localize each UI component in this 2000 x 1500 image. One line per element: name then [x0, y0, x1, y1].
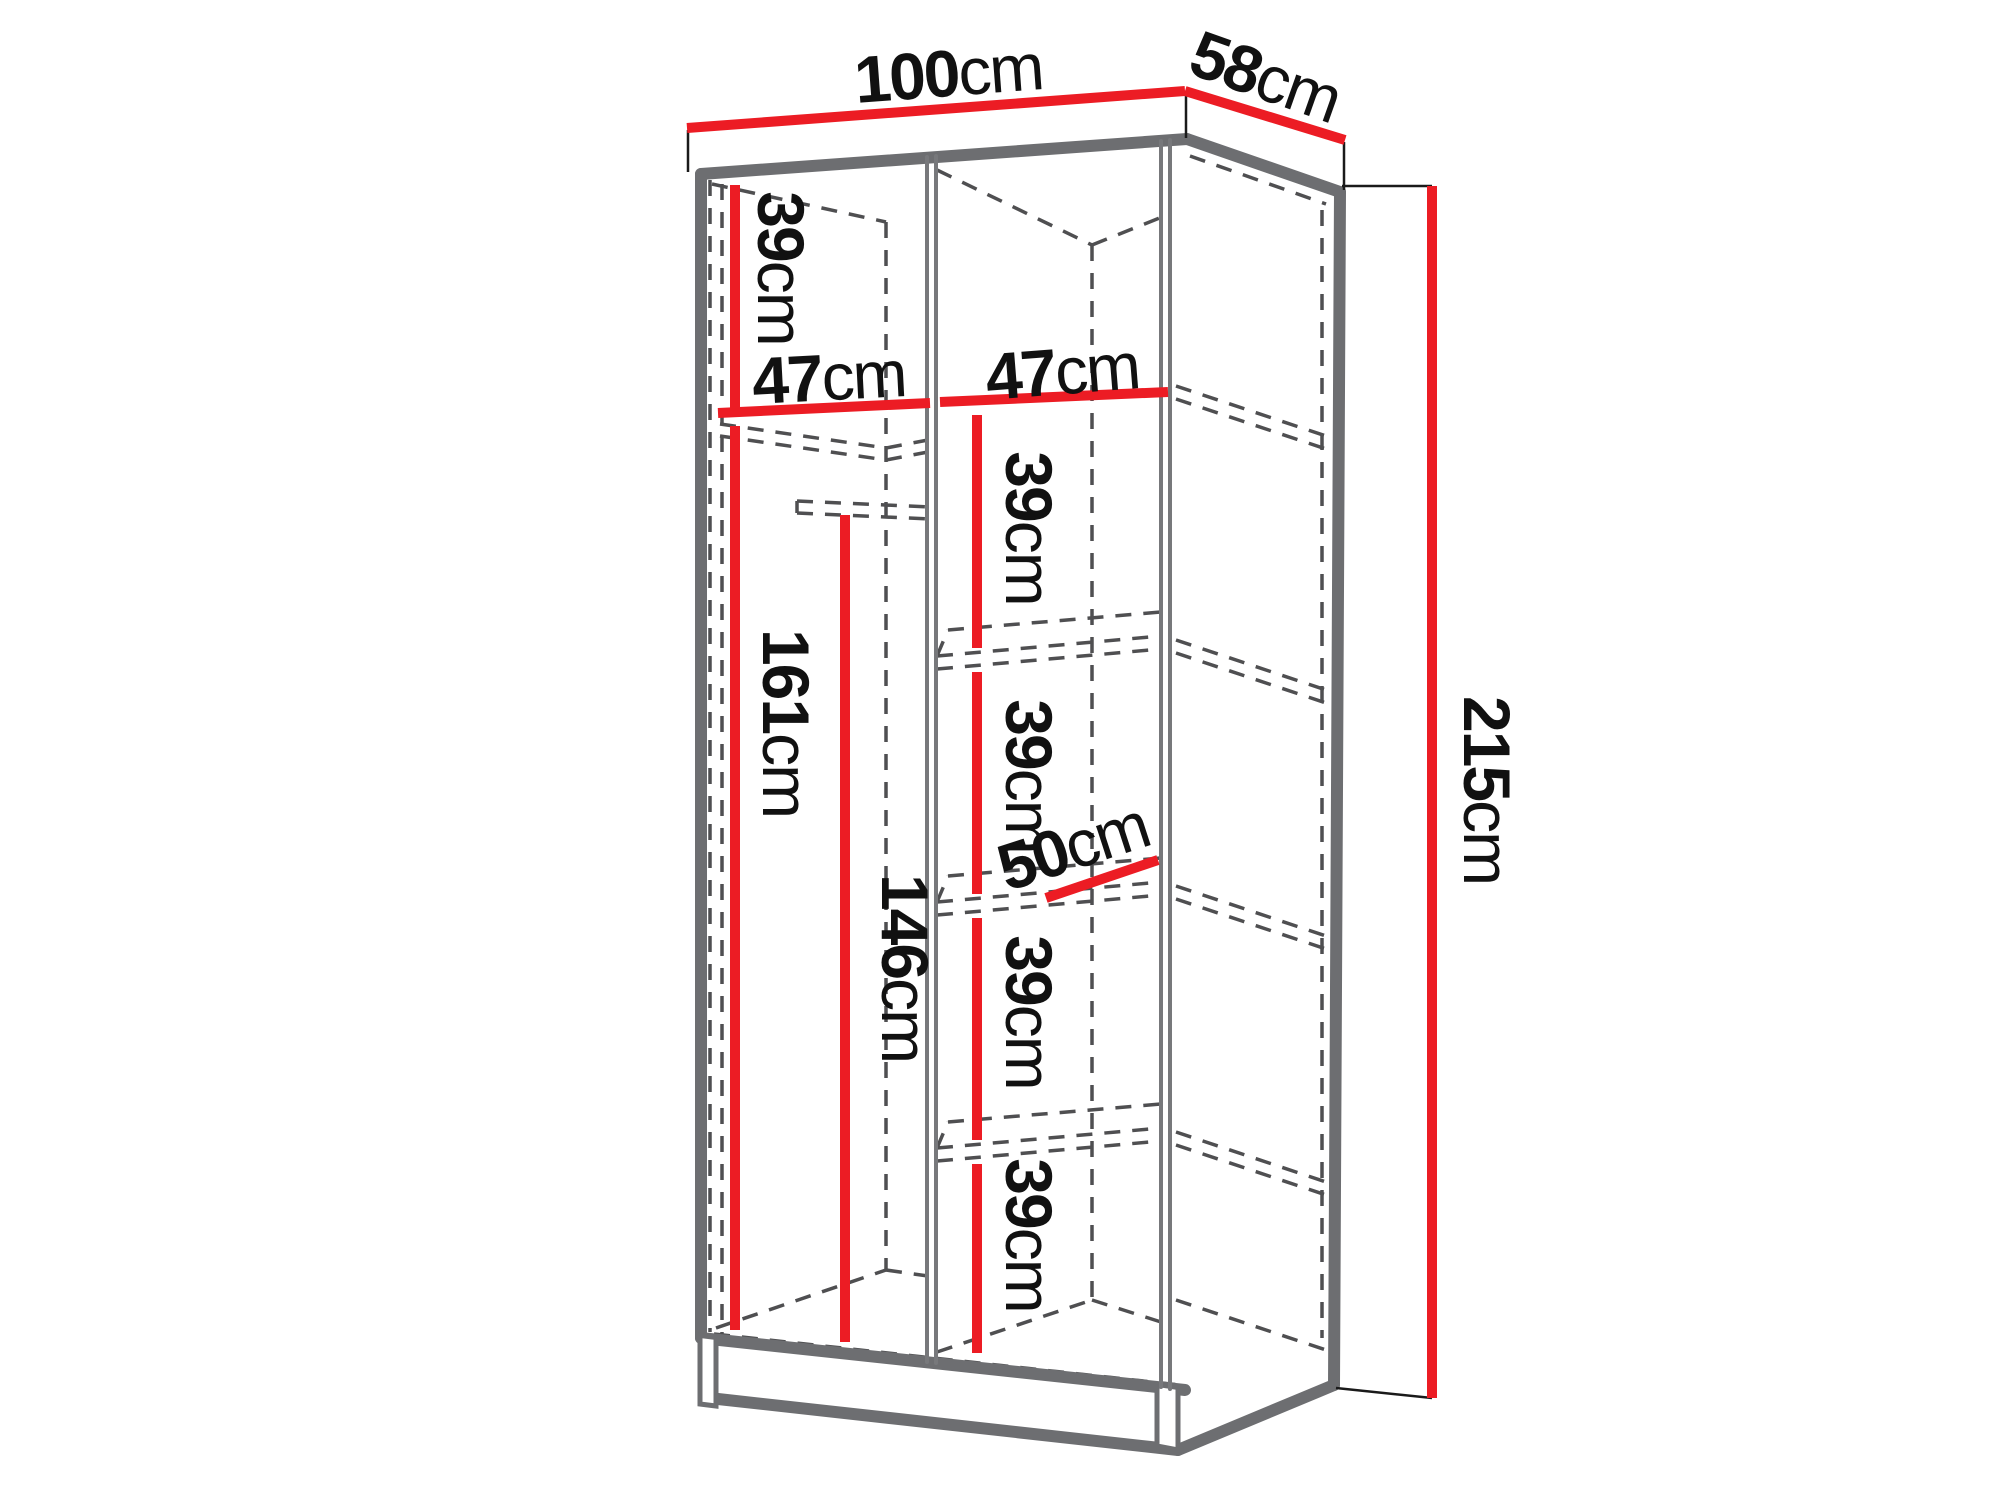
dim-shelf-gap-3-label: 39cm [992, 935, 1066, 1088]
dim-rail-height-label: 146cm [868, 874, 942, 1062]
dim-width-label: 100cm [852, 29, 1045, 117]
dim-height-label: 215cm [1450, 696, 1524, 884]
left-leg [700, 1338, 716, 1406]
dim-left-width-label: 47cm [750, 336, 907, 418]
right-leg [1157, 1387, 1178, 1450]
dim-left-section-label: 161cm [749, 629, 823, 817]
dim-shelf-gap-1-label: 39cm [992, 451, 1066, 604]
diagram-canvas: 100cm 58cm 215cm 39cm 47cm 47cm 161cm 14… [0, 0, 2000, 1500]
dim-top-shelf-label: 39cm [744, 191, 818, 344]
dim-right-width-label: 47cm [983, 328, 1142, 414]
wardrobe-dimension-diagram: 100cm 58cm 215cm 39cm 47cm 47cm 161cm 14… [0, 0, 2000, 1500]
dim-shelf-gap-4-label: 39cm [992, 1158, 1066, 1311]
